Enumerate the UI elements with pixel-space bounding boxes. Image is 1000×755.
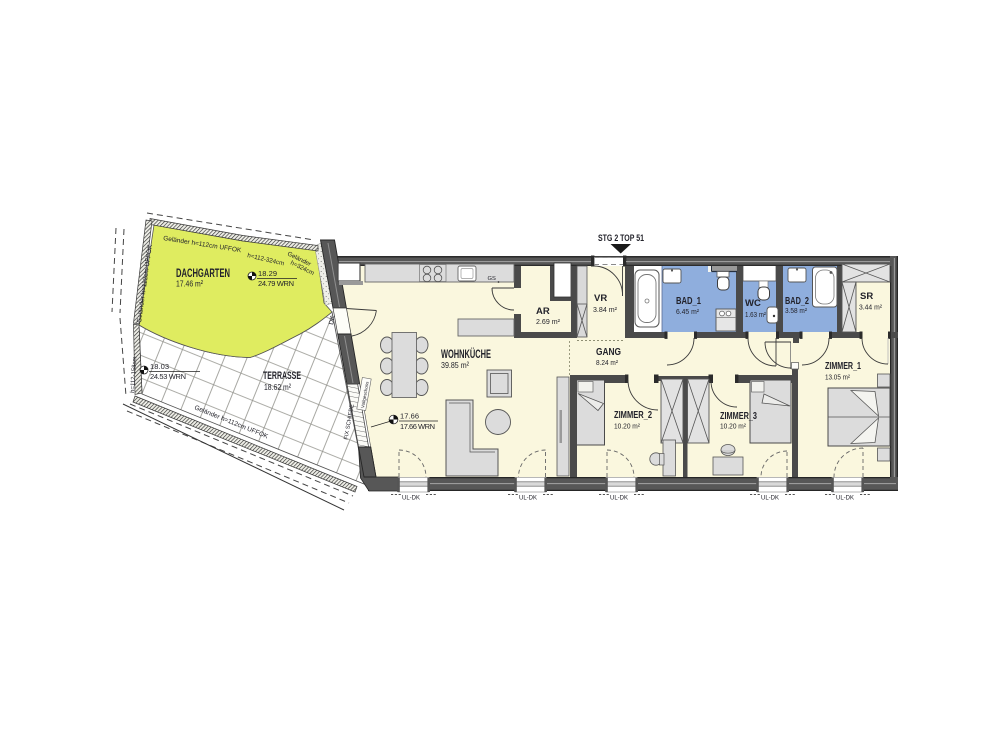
svg-text:18.62 m²: 18.62 m² bbox=[264, 382, 291, 392]
svg-text:STG 2 TOP 51: STG 2 TOP 51 bbox=[598, 233, 644, 243]
svg-text:SR: SR bbox=[860, 291, 873, 302]
svg-text:UL-DK: UL-DK bbox=[402, 496, 420, 502]
svg-text:24.53 WRN: 24.53 WRN bbox=[150, 372, 186, 381]
svg-text:17.66: 17.66 bbox=[400, 412, 419, 421]
svg-text:VR: VR bbox=[594, 293, 607, 304]
svg-text:18.03: 18.03 bbox=[150, 362, 169, 371]
svg-text:ZIMMER_2: ZIMMER_2 bbox=[614, 409, 652, 421]
svg-text:24.79 WRN: 24.79 WRN bbox=[258, 279, 294, 288]
svg-text:10.20 m²: 10.20 m² bbox=[720, 422, 746, 431]
svg-text:GS: GS bbox=[488, 276, 497, 282]
svg-text:BAD_1: BAD_1 bbox=[676, 295, 701, 307]
svg-text:3.44 m²: 3.44 m² bbox=[859, 303, 882, 312]
svg-text:3.84 m²: 3.84 m² bbox=[593, 305, 617, 314]
svg-text:10.20 m²: 10.20 m² bbox=[614, 422, 640, 431]
svg-text:UL-DK: UL-DK bbox=[836, 496, 854, 502]
svg-text:17.66 WRN: 17.66 WRN bbox=[400, 422, 435, 431]
svg-text:AR: AR bbox=[536, 306, 550, 317]
svg-text:WOHNKÜCHE: WOHNKÜCHE bbox=[441, 346, 491, 361]
svg-text:1.63 m²: 1.63 m² bbox=[745, 310, 766, 319]
svg-text:39.85 m²: 39.85 m² bbox=[441, 360, 469, 370]
svg-text:UL-DK: UL-DK bbox=[610, 496, 628, 502]
svg-text:17.46 m²: 17.46 m² bbox=[176, 279, 203, 289]
svg-text:UL-DK: UL-DK bbox=[761, 496, 779, 502]
svg-text:3.58 m²: 3.58 m² bbox=[785, 306, 807, 315]
svg-text:6.45 m²: 6.45 m² bbox=[676, 307, 699, 316]
svg-text:8.24 m²: 8.24 m² bbox=[596, 358, 618, 367]
svg-text:UL-DK: UL-DK bbox=[519, 496, 537, 502]
svg-text:18.29: 18.29 bbox=[258, 269, 277, 278]
svg-text:GANG: GANG bbox=[596, 346, 621, 358]
svg-text:ZIMMER_1: ZIMMER_1 bbox=[825, 360, 861, 372]
svg-text:TERRASSE: TERRASSE bbox=[263, 370, 301, 382]
svg-text:13.05 m²: 13.05 m² bbox=[825, 373, 850, 382]
svg-text:WC: WC bbox=[745, 298, 761, 309]
svg-text:2.69 m²: 2.69 m² bbox=[536, 317, 560, 326]
svg-text:ZIMMER_3: ZIMMER_3 bbox=[720, 410, 757, 422]
